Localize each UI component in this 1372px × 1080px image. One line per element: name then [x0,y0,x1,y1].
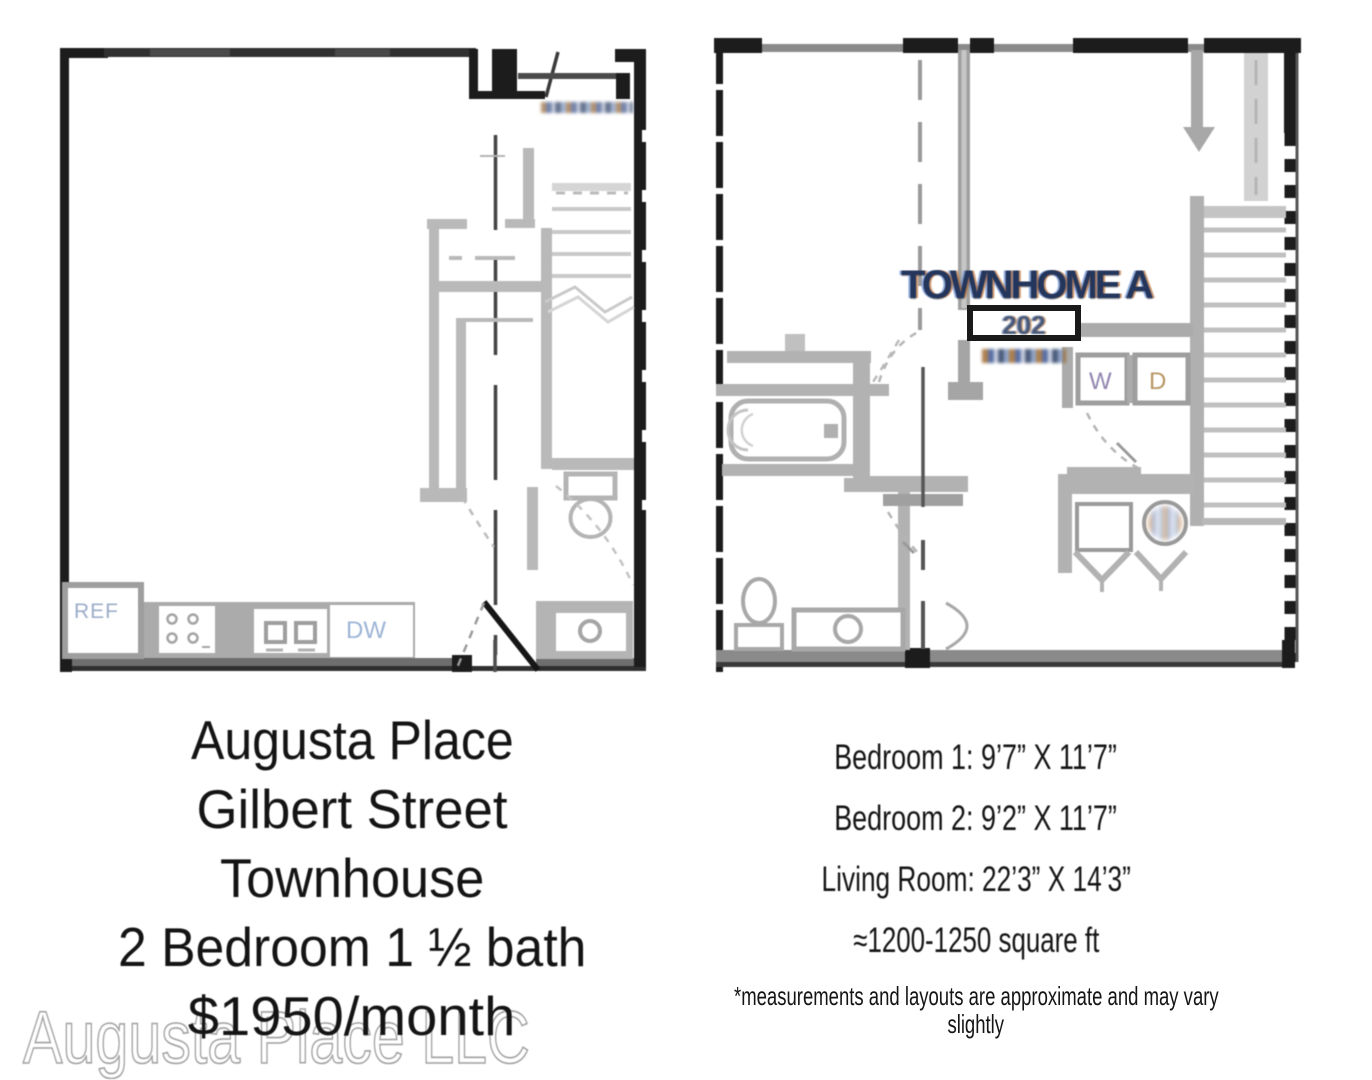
svg-text:W: W [1089,368,1112,395]
svg-text:D: D [1149,368,1166,395]
